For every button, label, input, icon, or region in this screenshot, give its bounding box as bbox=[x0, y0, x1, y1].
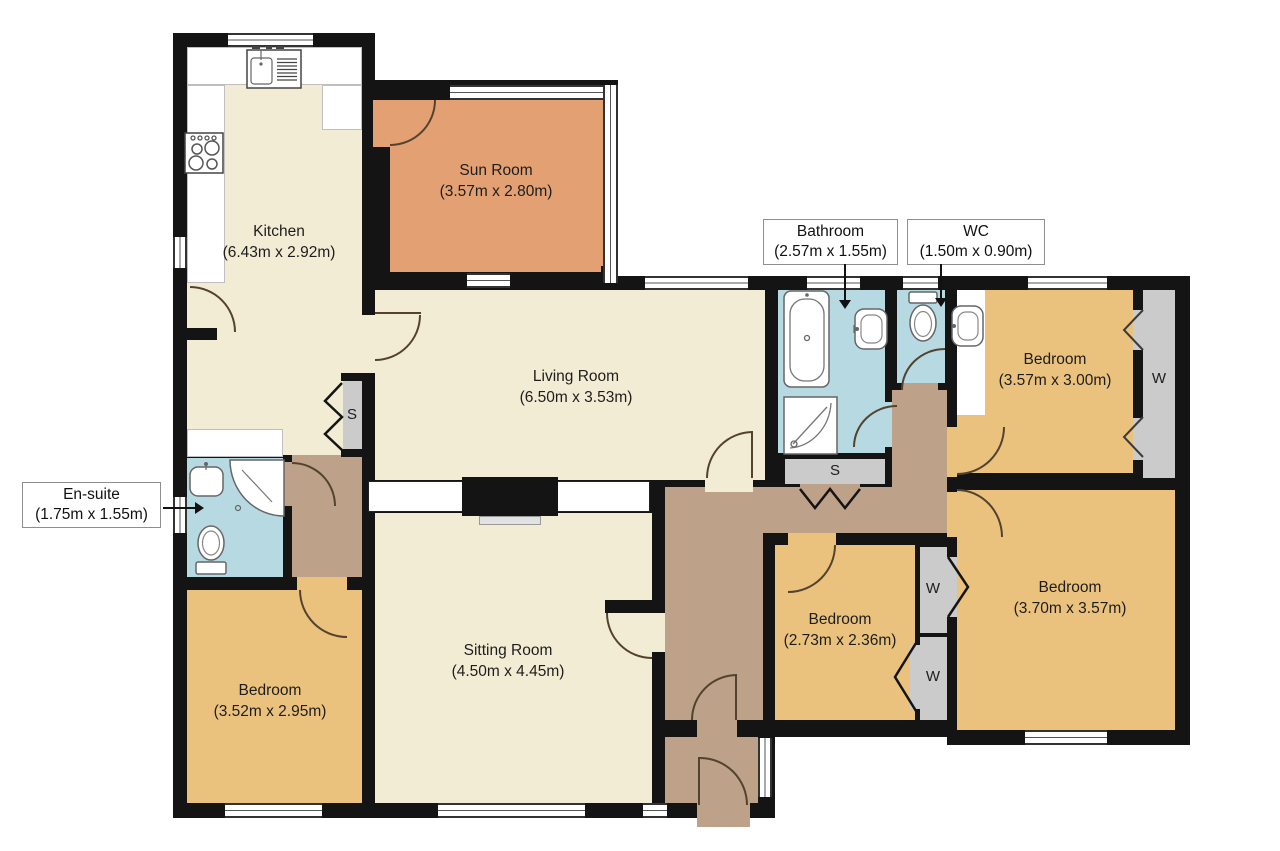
door-opening bbox=[373, 100, 390, 147]
callout-arrowhead bbox=[935, 298, 947, 307]
sink-icon bbox=[950, 304, 986, 348]
window bbox=[438, 803, 585, 818]
wardrobe-marker: W bbox=[918, 580, 948, 597]
door-leaf bbox=[735, 674, 737, 720]
bifold-doors-icon bbox=[796, 486, 866, 512]
wardrobe-marker: W bbox=[918, 668, 948, 685]
window bbox=[903, 276, 938, 290]
window bbox=[173, 497, 187, 533]
door-opening bbox=[697, 720, 737, 737]
room-label-sitting-room: Sitting Room(4.50m x 4.45m) bbox=[408, 640, 608, 682]
sink-icon bbox=[852, 306, 890, 352]
kitchen-sink-icon bbox=[246, 46, 303, 90]
window bbox=[1028, 276, 1107, 290]
floor-plan: S S W W W Kitchen(6.43m x 2.92m) Sun Roo… bbox=[0, 0, 1280, 851]
hearth bbox=[479, 516, 541, 525]
room-label-kitchen: Kitchen(6.43m x 2.92m) bbox=[179, 221, 379, 263]
window bbox=[758, 738, 772, 797]
door-leaf bbox=[751, 431, 753, 478]
window bbox=[228, 33, 313, 47]
shower-icon bbox=[783, 396, 840, 457]
hall-unit bbox=[187, 429, 283, 457]
toilet-icon bbox=[192, 524, 230, 576]
window bbox=[225, 803, 322, 818]
wall-stub bbox=[341, 373, 364, 381]
window bbox=[467, 273, 510, 288]
door-opening bbox=[297, 577, 347, 590]
window bbox=[645, 276, 748, 290]
room-label-bedroom-bottom-right: Bedroom(3.70m x 3.57m) bbox=[970, 577, 1170, 619]
corner-shower-icon bbox=[228, 458, 286, 518]
front-door-threshold bbox=[697, 803, 750, 827]
sunroom-glazing bbox=[450, 85, 618, 100]
room-label-bedroom-top-right: Bedroom(3.57m x 3.00m) bbox=[955, 349, 1155, 391]
door-opening bbox=[652, 613, 665, 652]
window bbox=[643, 803, 667, 818]
storage-marker: S bbox=[820, 462, 850, 479]
bathtub-icon bbox=[783, 290, 831, 389]
front-door-leaf bbox=[698, 757, 700, 805]
bifold-doors-icon bbox=[945, 555, 973, 619]
door-opening bbox=[947, 492, 957, 537]
callout-bathroom: Bathroom(2.57m x 1.55m) bbox=[763, 219, 898, 265]
callout-en-suite: En-suite(1.75m x 1.55m) bbox=[22, 482, 161, 528]
callout-wc: WC(1.50m x 0.90m) bbox=[907, 219, 1045, 265]
callout-arrow bbox=[163, 507, 197, 509]
door-opening bbox=[947, 427, 957, 477]
bifold-doors-icon bbox=[891, 641, 919, 713]
room-label-living-room: Living Room(6.50m x 3.53m) bbox=[476, 366, 676, 408]
room-label-bedroom-middle: Bedroom(2.73m x 2.36m) bbox=[740, 609, 940, 651]
kitchen-unit bbox=[322, 85, 362, 130]
callout-arrow bbox=[940, 264, 942, 300]
hob-icon bbox=[184, 128, 225, 175]
sink-icon bbox=[188, 460, 226, 498]
sunroom-glazing bbox=[603, 85, 618, 283]
hall-stub bbox=[892, 390, 947, 492]
window bbox=[1025, 730, 1107, 745]
window bbox=[807, 276, 860, 290]
storage-marker: S bbox=[337, 406, 367, 423]
wall-stub bbox=[341, 449, 364, 457]
callout-arrowhead bbox=[839, 300, 851, 309]
callout-arrow bbox=[844, 264, 846, 302]
wall-stub bbox=[605, 600, 655, 613]
bifold-doors-icon bbox=[1118, 308, 1146, 352]
door-opening bbox=[788, 533, 836, 545]
callout-arrowhead bbox=[195, 502, 204, 514]
bifold-doors-icon bbox=[1118, 415, 1146, 459]
door-leaf bbox=[375, 312, 421, 314]
room-label-sun-room: Sun Room(3.57m x 2.80m) bbox=[396, 160, 596, 202]
door-opening bbox=[705, 478, 753, 492]
fireplace bbox=[462, 477, 558, 516]
room-label-bedroom-left: Bedroom(3.52m x 2.95m) bbox=[170, 680, 370, 722]
